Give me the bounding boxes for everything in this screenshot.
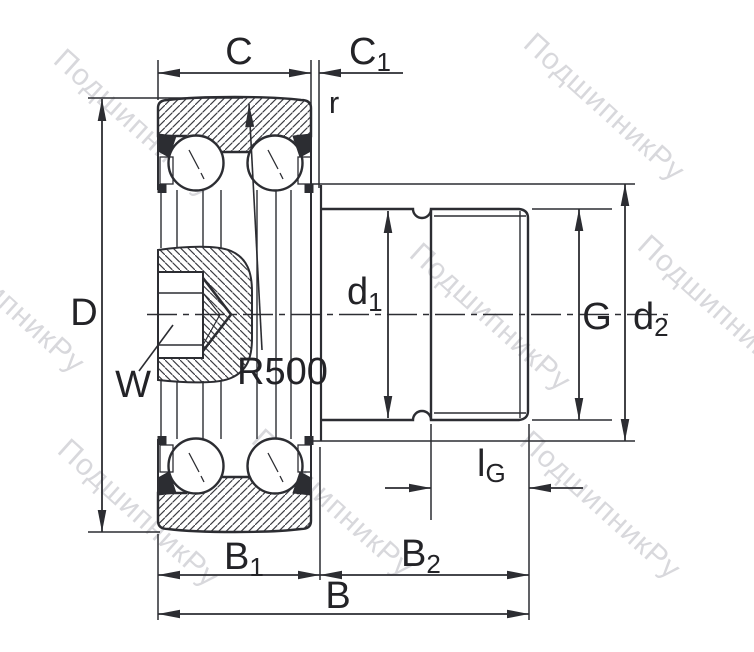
dim-label-b1-sub: 1 — [249, 552, 263, 582]
watermark-text: ПодшипникРу — [517, 27, 691, 188]
dim-label-c1-main: C — [349, 31, 376, 73]
dim-label-b1-main: B — [224, 536, 249, 578]
dim-label-g: G — [582, 296, 612, 338]
watermark-text: ПодшипникРу — [513, 425, 687, 586]
dim-label-d2-sub: 2 — [654, 312, 668, 342]
bearing-drawing-page: ПодшипникРу ПодшипникРу ПодшипникРу Подш… — [0, 0, 754, 652]
dim-label-d1-sub: 1 — [368, 287, 382, 317]
watermark-text: ПодшипникРу — [403, 237, 577, 398]
dim-label-lg-main: l — [477, 443, 485, 485]
dim-label-c1: C1 — [349, 31, 391, 77]
dim-label-d-outer: D — [70, 292, 97, 334]
seal-foot — [158, 184, 167, 193]
dim-label-w: W — [115, 364, 151, 406]
dim-label-r: r — [329, 85, 339, 120]
dim-label-c: C — [225, 31, 252, 73]
dim-label-r500: R500 — [237, 351, 328, 393]
dim-label-b2-main: B — [401, 533, 426, 575]
technical-drawing: ПодшипникРу ПодшипникРу ПодшипникРу Подш… — [0, 0, 754, 652]
dim-label-d1: d1 — [347, 271, 383, 317]
dim-label-b2-sub: 2 — [426, 549, 440, 579]
dim-label-b2: B2 — [401, 533, 441, 579]
dim-label-d2: d2 — [633, 296, 669, 342]
seal-foot — [305, 184, 314, 193]
dim-label-b1: B1 — [224, 536, 264, 582]
dim-label-c1-sub: 1 — [376, 47, 390, 77]
dim-label-d2-main: d — [633, 296, 654, 338]
dim-label-lg: lG — [477, 443, 506, 488]
dim-label-d1-main: d — [347, 271, 368, 313]
dim-label-lg-sub: G — [485, 458, 505, 488]
seal-foot — [158, 436, 167, 445]
dim-label-b: B — [325, 575, 350, 617]
